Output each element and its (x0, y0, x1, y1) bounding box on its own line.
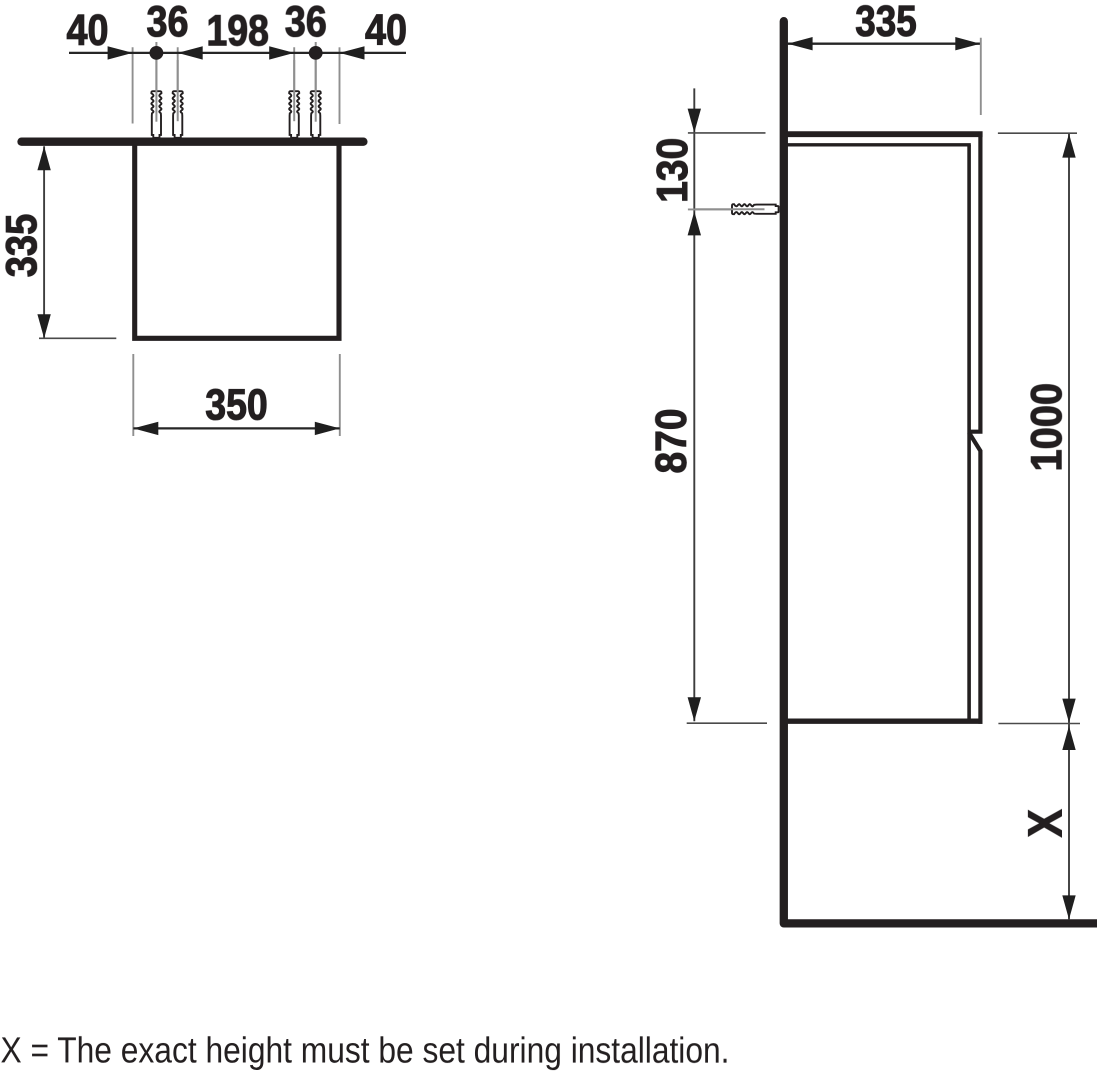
svg-text:X = The exact height must be s: X = The exact height must be set during … (0, 1029, 729, 1070)
svg-text:335: 335 (855, 0, 917, 46)
svg-text:40: 40 (365, 7, 407, 55)
svg-text:198: 198 (206, 7, 269, 55)
svg-text:1000: 1000 (1023, 383, 1071, 472)
svg-text:X: X (1019, 809, 1072, 837)
svg-text:36: 36 (146, 0, 188, 46)
svg-text:350: 350 (205, 381, 268, 429)
svg-text:36: 36 (285, 0, 327, 46)
svg-text:40: 40 (66, 7, 108, 55)
svg-text:130: 130 (649, 138, 697, 203)
svg-text:870: 870 (648, 408, 696, 473)
svg-text:335: 335 (0, 214, 46, 278)
